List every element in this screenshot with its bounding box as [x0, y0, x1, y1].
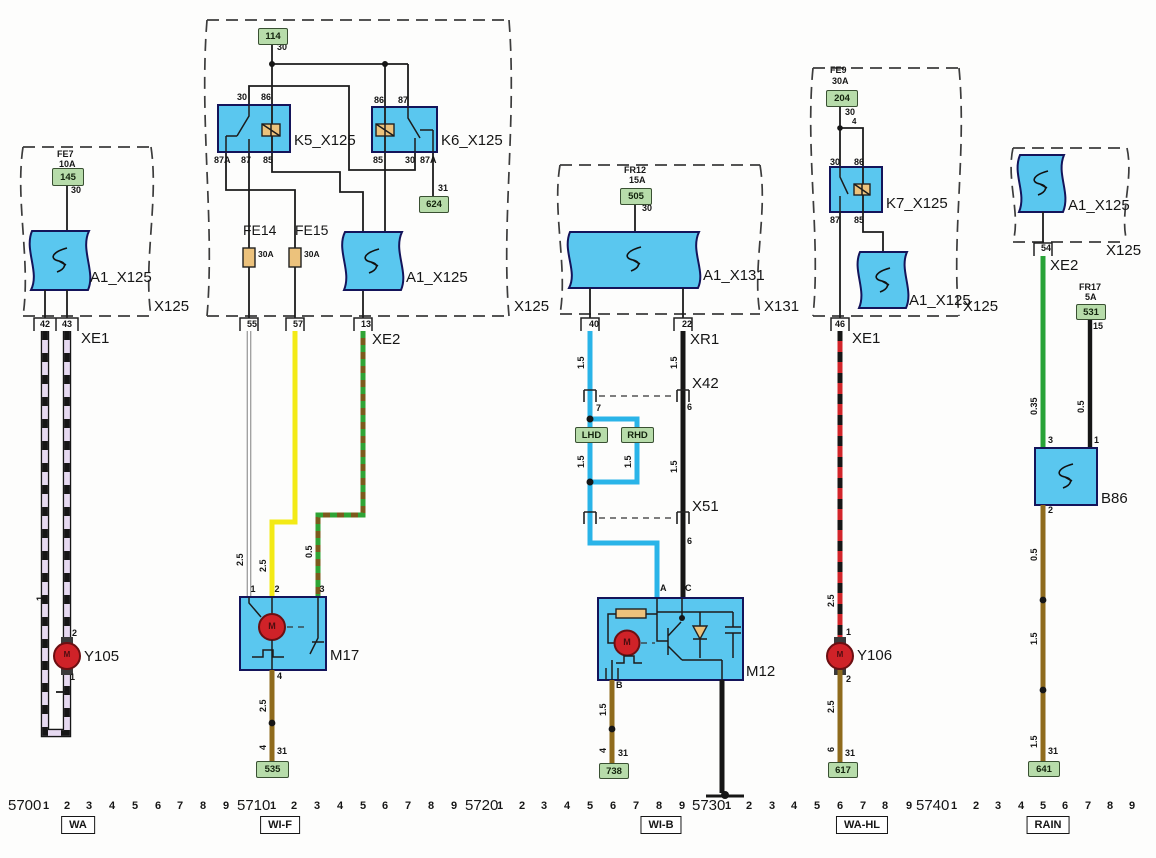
circuit-wib [558, 165, 763, 799]
motor-symbol [615, 631, 640, 656]
connector-xe1-pins [34, 318, 78, 331]
wiring-diagram [0, 0, 1156, 858]
fuse-fe15-symbol [289, 248, 301, 267]
control-unit-a1x125 [1018, 155, 1066, 212]
motor-symbol [259, 614, 285, 640]
pump-y106-symbol [827, 643, 853, 669]
circuit-wif [205, 20, 512, 761]
control-unit-a1x125 [858, 252, 909, 308]
control-unit-a1x125 [342, 232, 403, 290]
wiring-diagram-page: FE710A30A1_X125X1254243XE112Y105130K5_X1… [0, 0, 1156, 858]
circuit-wa [21, 147, 154, 733]
pump-y105-symbol [54, 643, 80, 669]
resistor-icon [616, 609, 646, 618]
fuse-fe14-symbol [243, 248, 255, 267]
circuit-rain [1011, 148, 1129, 762]
circuit-wahl [811, 68, 962, 762]
